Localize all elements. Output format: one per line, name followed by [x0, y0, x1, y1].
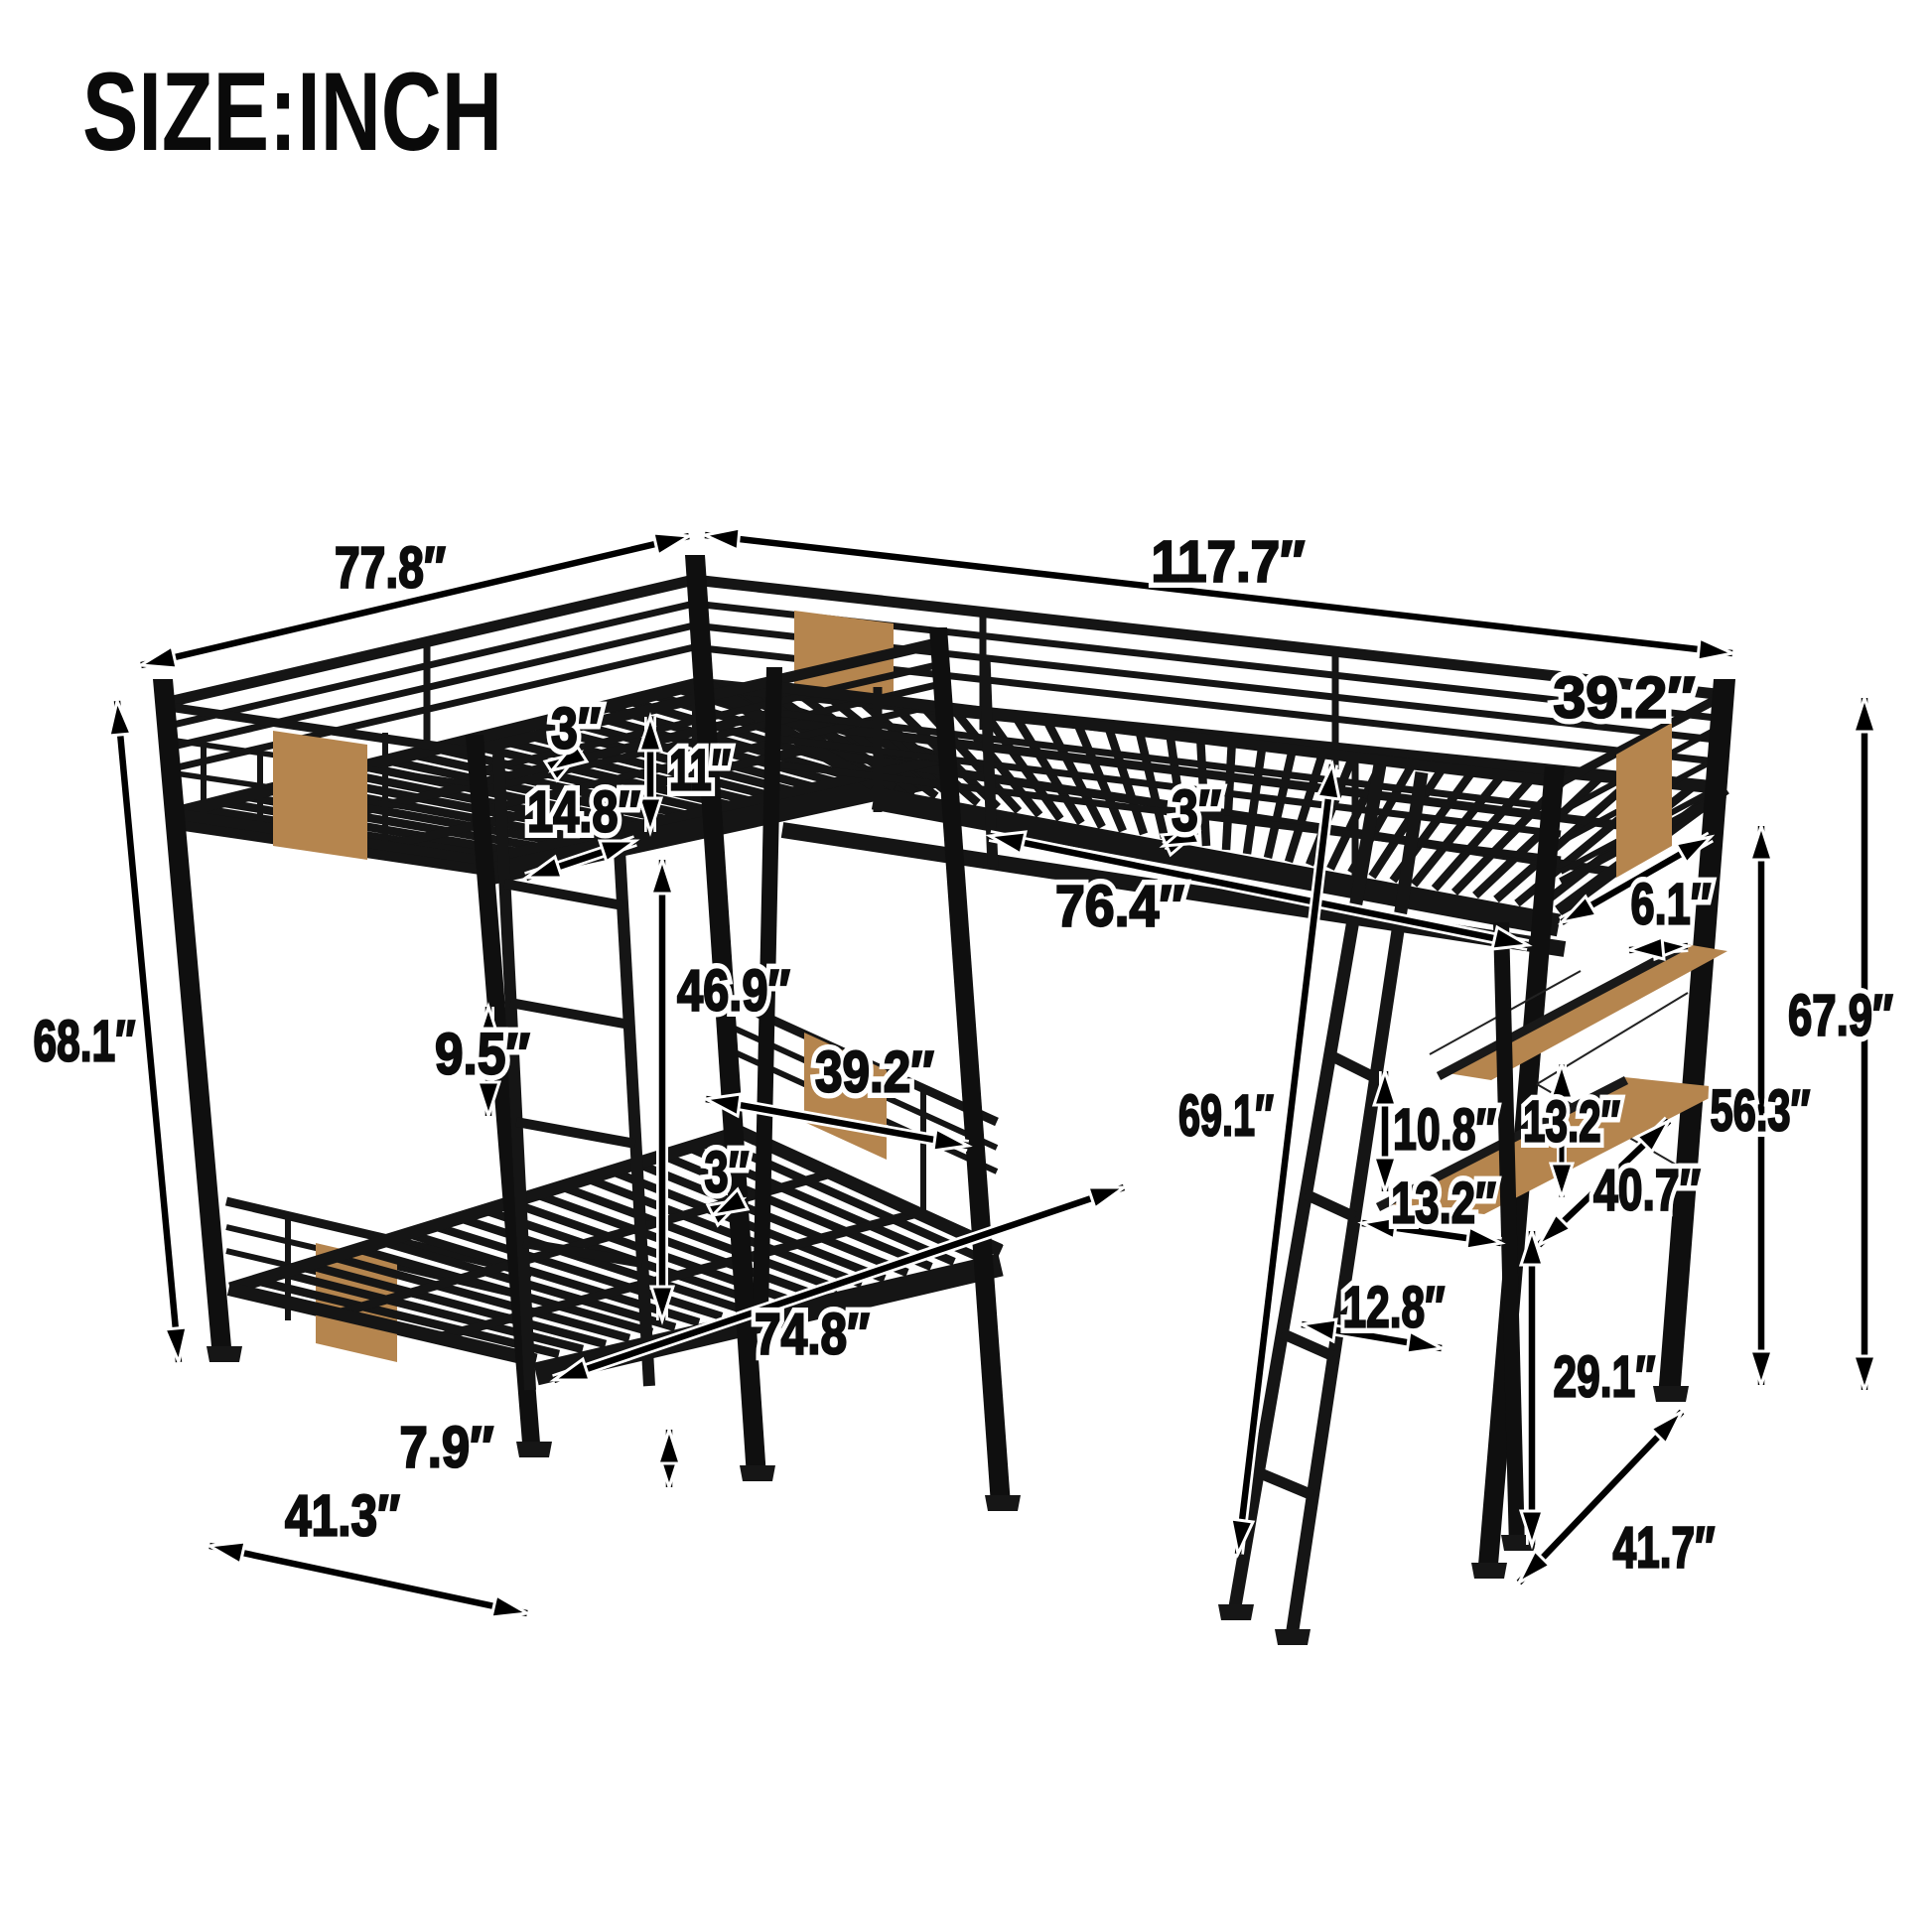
svg-text:14.8″: 14.8″	[527, 780, 640, 845]
svg-text:41.3″: 41.3″	[285, 1484, 400, 1549]
svg-text:9.5″: 9.5″	[435, 1023, 530, 1087]
svg-text:67.9″: 67.9″	[1788, 984, 1893, 1048]
svg-text:69.1″: 69.1″	[1178, 1084, 1274, 1149]
svg-text:6.1″: 6.1″	[1631, 873, 1712, 937]
svg-text:7.9″: 7.9″	[400, 1416, 494, 1480]
svg-text:41.7″: 41.7″	[1613, 1516, 1716, 1581]
svg-text:40.7″: 40.7″	[1593, 1159, 1701, 1223]
svg-text:76.4″: 76.4″	[1055, 875, 1184, 939]
svg-text:39.2″: 39.2″	[815, 1040, 934, 1105]
svg-text:77.8″: 77.8″	[335, 536, 446, 601]
svg-text:3″: 3″	[705, 1141, 750, 1205]
svg-text:12.8″: 12.8″	[1343, 1276, 1446, 1340]
svg-text:74.8″: 74.8″	[755, 1303, 870, 1367]
svg-text:11″: 11″	[669, 739, 731, 803]
svg-text:39.2″: 39.2″	[1554, 666, 1696, 731]
svg-text:SIZE:INCH: SIZE:INCH	[82, 50, 502, 174]
svg-text:13.2″: 13.2″	[1391, 1172, 1496, 1236]
svg-text:46.9″: 46.9″	[677, 959, 790, 1024]
svg-text:56.3″: 56.3″	[1711, 1079, 1811, 1144]
svg-text:10.8″: 10.8″	[1393, 1098, 1496, 1163]
svg-text:29.1″: 29.1″	[1554, 1345, 1656, 1410]
svg-text:117.7″: 117.7″	[1152, 530, 1306, 595]
svg-text:68.1″: 68.1″	[34, 1010, 136, 1074]
svg-text:3″: 3″	[551, 697, 601, 761]
svg-text:13.2″: 13.2″	[1523, 1090, 1620, 1155]
svg-text:3″: 3″	[1172, 779, 1221, 844]
